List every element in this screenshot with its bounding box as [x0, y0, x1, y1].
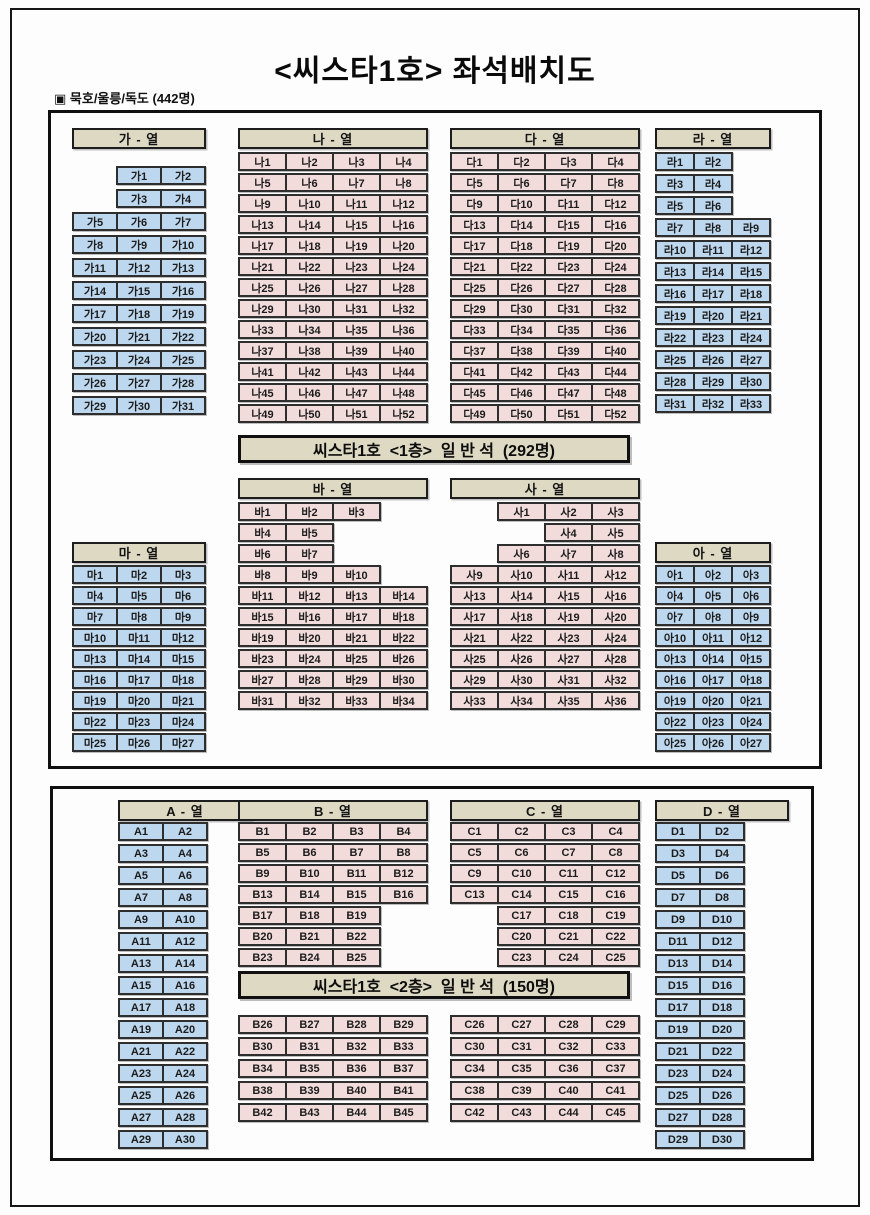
- seat: 사24: [591, 628, 640, 647]
- seat: B12: [379, 864, 428, 883]
- seat-row: 다33다34다35다36: [450, 320, 640, 339]
- seat-row: 마4마5마6: [72, 586, 206, 605]
- seat-row: D17D18: [655, 998, 745, 1017]
- seat: B16: [379, 885, 428, 904]
- seat-row: D27D28: [655, 1108, 745, 1127]
- seat-row: 사13사14사15사16: [450, 586, 640, 605]
- seat: C44: [544, 1103, 593, 1122]
- seat: C3: [544, 822, 593, 841]
- seat: 마12: [160, 628, 206, 647]
- seat: 다51: [544, 404, 593, 423]
- seat: 사7: [544, 544, 593, 563]
- seat: A8: [162, 888, 208, 907]
- seat-grid-na: 나1나2나3나4나5나6나7나8나9나10나11나12나13나14나15나16나…: [238, 152, 428, 423]
- seat: 가21: [116, 327, 162, 346]
- seat: 나14: [285, 215, 334, 234]
- seat-row: 다45다46다47다48: [450, 383, 640, 402]
- seat: C32: [544, 1037, 593, 1056]
- seat: 다18: [497, 236, 546, 255]
- seat: 나36: [379, 320, 428, 339]
- seat: D8: [699, 888, 745, 907]
- seat: 나40: [379, 341, 428, 360]
- seat-row: A23A24: [118, 1064, 208, 1083]
- seat: 라1: [655, 152, 695, 171]
- seat-row: B26B27B28B29: [238, 1015, 428, 1034]
- seat: 사35: [544, 691, 593, 710]
- seat: 바16: [285, 607, 334, 626]
- seat: 마1: [72, 565, 118, 584]
- seat-row: 마16마17마18: [72, 670, 206, 689]
- seat: 나26: [285, 278, 334, 297]
- seat: 다15: [544, 215, 593, 234]
- seat: A29: [118, 1130, 164, 1149]
- seat: 다1: [450, 152, 499, 171]
- seat: 라33: [731, 394, 771, 413]
- seat: B27: [285, 1015, 334, 1034]
- seat: 사36: [591, 691, 640, 710]
- seat: 라29: [693, 372, 733, 391]
- seat: 사31: [544, 670, 593, 689]
- seat-row: C38C39C40C41: [450, 1081, 640, 1100]
- seat: B25: [332, 948, 381, 967]
- seat: 가18: [116, 304, 162, 323]
- column-header-da: 다 - 열: [450, 128, 640, 149]
- seat: 바26: [379, 649, 428, 668]
- seat-row: 다1다2다3다4: [450, 152, 640, 171]
- seat: 바15: [238, 607, 287, 626]
- seat: 나39: [332, 341, 381, 360]
- seat: C21: [544, 927, 593, 946]
- seat: C9: [450, 864, 499, 883]
- seat: 다41: [450, 362, 499, 381]
- seat: 사10: [497, 565, 546, 584]
- seat-row: B13B14B15B16: [238, 885, 428, 904]
- seat: C26: [450, 1015, 499, 1034]
- column-header-ga: 가 - 열: [72, 128, 206, 149]
- seat: 나19: [332, 236, 381, 255]
- seat: 다39: [544, 341, 593, 360]
- page-title: <씨스타1호> 좌석배치도: [0, 46, 870, 90]
- seat: 사9: [450, 565, 499, 584]
- seat: 가15: [116, 281, 162, 300]
- seat: D26: [699, 1086, 745, 1105]
- seat: A20: [162, 1020, 208, 1039]
- seat: 아13: [655, 649, 695, 668]
- seat: 가20: [72, 327, 118, 346]
- seat: 마7: [72, 607, 118, 626]
- seat-row: 라3라4: [655, 174, 771, 193]
- seat-row: D23D24: [655, 1064, 745, 1083]
- seat: 나16: [379, 215, 428, 234]
- seat: A14: [162, 954, 208, 973]
- seat: 나12: [379, 194, 428, 213]
- seat-row: 아1아2아3: [655, 565, 771, 584]
- seat: 라28: [655, 372, 695, 391]
- seat: B8: [379, 843, 428, 862]
- seat: D17: [655, 998, 701, 1017]
- seat-row: 라10라11라12: [655, 240, 771, 259]
- seat: 나38: [285, 341, 334, 360]
- seat: 나49: [238, 404, 287, 423]
- seat: 사13: [450, 586, 499, 605]
- seat: D24: [699, 1064, 745, 1083]
- seat: 사20: [591, 607, 640, 626]
- seat: 마15: [160, 649, 206, 668]
- seat: B33: [379, 1037, 428, 1056]
- seat: 사11: [544, 565, 593, 584]
- seat-row: 다29다30다31다32: [450, 299, 640, 318]
- seat-grid-ah: 아1아2아3아4아5아6아7아8아9아10아11아12아13아14아15아16아…: [655, 565, 771, 752]
- seat-row: 바6바7: [238, 544, 428, 563]
- seat-grid-da: 다1다2다3다4다5다6다7다8다9다10다11다12다13다14다15다16다…: [450, 152, 640, 423]
- seat: 사5: [591, 523, 640, 542]
- seat-row: C1C2C3C4: [450, 822, 640, 841]
- seat: 다37: [450, 341, 499, 360]
- seat-row: 나21나22나23나24: [238, 257, 428, 276]
- seat: C25: [591, 948, 640, 967]
- seat: 사12: [591, 565, 640, 584]
- seat-row: 아16아17아18: [655, 670, 771, 689]
- seat: 사1: [497, 502, 546, 521]
- seat: 아15: [731, 649, 771, 668]
- seat-grid-C-lower: C26C27C28C29C30C31C32C33C34C35C36C37C38C…: [450, 1015, 640, 1122]
- seat: 마2: [116, 565, 162, 584]
- seat-grid-ba: 바1바2바3바4바5바6바7바8바9바10바11바12바13바14바15바16바…: [238, 502, 428, 710]
- seat: 바29: [332, 670, 381, 689]
- seat: 바9: [285, 565, 334, 584]
- seat: C38: [450, 1081, 499, 1100]
- seat-row: 사29사30사31사32: [450, 670, 640, 689]
- seat: D16: [699, 976, 745, 995]
- seat-row: 바1바2바3: [238, 502, 428, 521]
- seat: A28: [162, 1108, 208, 1127]
- seat: B6: [285, 843, 334, 862]
- seat: C8: [591, 843, 640, 862]
- seat: C11: [544, 864, 593, 883]
- seat-row: C9C10C11C12: [450, 864, 640, 883]
- seat: A12: [162, 932, 208, 951]
- seat: 바20: [285, 628, 334, 647]
- seat: B7: [332, 843, 381, 862]
- seat: C31: [497, 1037, 546, 1056]
- seat: 다50: [497, 404, 546, 423]
- seat: 가3: [116, 189, 162, 208]
- seat: 나43: [332, 362, 381, 381]
- seat: 마10: [72, 628, 118, 647]
- seat: 다31: [544, 299, 593, 318]
- seat-row: 가5가6가7: [72, 212, 206, 231]
- seat: 라11: [693, 240, 733, 259]
- seat: 다17: [450, 236, 499, 255]
- seat: 다7: [544, 173, 593, 192]
- seat: 아3: [731, 565, 771, 584]
- seat: 아1: [655, 565, 695, 584]
- seat-row: 바31바32바33바34: [238, 691, 428, 710]
- seat: 다35: [544, 320, 593, 339]
- seat: 나20: [379, 236, 428, 255]
- seat: B28: [332, 1015, 381, 1034]
- seat: 가1: [116, 166, 162, 185]
- seat: C28: [544, 1015, 593, 1034]
- seat: D1: [655, 822, 701, 841]
- seat: 가6: [116, 212, 162, 231]
- seat-row: 라13라14라15: [655, 262, 771, 281]
- seat: B22: [332, 927, 381, 946]
- seat-grid-B-lower: B26B27B28B29B30B31B32B33B34B35B36B37B38B…: [238, 1015, 428, 1122]
- seat: 가28: [160, 373, 206, 392]
- seat-row: B38B39B40B41: [238, 1081, 428, 1100]
- seat: 아12: [731, 628, 771, 647]
- seat: C24: [544, 948, 593, 967]
- seat: 바32: [285, 691, 334, 710]
- seat: 나33: [238, 320, 287, 339]
- seat: C12: [591, 864, 640, 883]
- seat-row: 다13다14다15다16: [450, 215, 640, 234]
- seat: B4: [379, 822, 428, 841]
- seat-row: 바4바5: [238, 523, 428, 542]
- seat: 아6: [731, 586, 771, 605]
- seat: 사23: [544, 628, 593, 647]
- seat-row: D11D12: [655, 932, 745, 951]
- seat: 사17: [450, 607, 499, 626]
- seat-row: 가17가18가19: [72, 304, 206, 323]
- seat: 다21: [450, 257, 499, 276]
- seat-row: A15A16: [118, 976, 208, 995]
- seat: 아16: [655, 670, 695, 689]
- seat: B14: [285, 885, 334, 904]
- seat: 가26: [72, 373, 118, 392]
- seat: A2: [162, 822, 208, 841]
- seat-row: C20C21C22: [450, 927, 640, 946]
- seat-row: 마22마23마24: [72, 712, 206, 731]
- seat: 바21: [332, 628, 381, 647]
- seat: 가9: [116, 235, 162, 254]
- seat: 마24: [160, 712, 206, 731]
- seat-row: A19A20: [118, 1020, 208, 1039]
- seat: D18: [699, 998, 745, 1017]
- column-header-ah: 아 - 열: [655, 542, 771, 563]
- seat: C45: [591, 1103, 640, 1122]
- deck2-section: A - 열 A1A2A3A4A5A6A7A8A9A10A11A12A13A14A…: [50, 786, 814, 1161]
- seat: 바23: [238, 649, 287, 668]
- seat: C40: [544, 1081, 593, 1100]
- seat-row: 나41나42나43나44: [238, 362, 428, 381]
- seat: 나23: [332, 257, 381, 276]
- seat: 아9: [731, 607, 771, 626]
- seat: 바13: [332, 586, 381, 605]
- seat: 라17: [693, 284, 733, 303]
- seat: 다47: [544, 383, 593, 402]
- seat-row: 가14가15가16: [72, 281, 206, 300]
- seat: 다34: [497, 320, 546, 339]
- seat: 나44: [379, 362, 428, 381]
- seat: 바10: [332, 565, 381, 584]
- seat: D2: [699, 822, 745, 841]
- seat: 사27: [544, 649, 593, 668]
- seat-row: D15D16: [655, 976, 745, 995]
- seat: C22: [591, 927, 640, 946]
- seat: 바12: [285, 586, 334, 605]
- seat: 다44: [591, 362, 640, 381]
- seat-row: 가11가12가13: [72, 258, 206, 277]
- seat: 아22: [655, 712, 695, 731]
- seat: 가27: [116, 373, 162, 392]
- seat: 사14: [497, 586, 546, 605]
- seat: C34: [450, 1059, 499, 1078]
- seat-row: 라19라20라21: [655, 306, 771, 325]
- seat: C13: [450, 885, 499, 904]
- seat-row: 아7아8아9: [655, 607, 771, 626]
- seat: 바19: [238, 628, 287, 647]
- seat-row: 나29나30나31나32: [238, 299, 428, 318]
- seat: 가5: [72, 212, 118, 231]
- seat-row: D9D10: [655, 910, 745, 929]
- seat-row: B34B35B36B37: [238, 1059, 428, 1078]
- seat: D20: [699, 1020, 745, 1039]
- seat: D14: [699, 954, 745, 973]
- seat-row: A17A18: [118, 998, 208, 1017]
- seat-row: 바27바28바29바30: [238, 670, 428, 689]
- seat: A30: [162, 1130, 208, 1149]
- seat-row: A11A12: [118, 932, 208, 951]
- seat: 라14: [693, 262, 733, 281]
- seat: C41: [591, 1081, 640, 1100]
- deck1-section: 가 - 열 가1가2가3가4가5가6가7가8가9가10가11가12가13가14가…: [48, 110, 822, 769]
- seat-row: D19D20: [655, 1020, 745, 1039]
- seat: D22: [699, 1042, 745, 1061]
- seat-row: 바23바24바25바26: [238, 649, 428, 668]
- seat-row: B23B24B25: [238, 948, 428, 967]
- seat: A19: [118, 1020, 164, 1039]
- seat-row: A21A22: [118, 1042, 208, 1061]
- seat: B13: [238, 885, 287, 904]
- seat-row: C13C14C15C16: [450, 885, 640, 904]
- seat: 가10: [160, 235, 206, 254]
- seat: B23: [238, 948, 287, 967]
- column-header-ba: 바 - 열: [238, 478, 428, 499]
- seat: B20: [238, 927, 287, 946]
- seat: 마3: [160, 565, 206, 584]
- column-header-A: A - 열: [118, 800, 252, 821]
- seat: 나4: [379, 152, 428, 171]
- seat-row: C5C6C7C8: [450, 843, 640, 862]
- seat: 나27: [332, 278, 381, 297]
- seat: C20: [497, 927, 546, 946]
- seat: 가16: [160, 281, 206, 300]
- seat: 바7: [285, 544, 334, 563]
- seat: 사21: [450, 628, 499, 647]
- seat: 다24: [591, 257, 640, 276]
- seat: A5: [118, 866, 164, 885]
- seat-row: C26C27C28C29: [450, 1015, 640, 1034]
- seat-row: A5A6: [118, 866, 208, 885]
- seat: 라5: [655, 196, 695, 215]
- seat-row: 가1가2: [72, 166, 206, 185]
- seat: 마19: [72, 691, 118, 710]
- seat: 나3: [332, 152, 381, 171]
- seat: C43: [497, 1103, 546, 1122]
- seat: B38: [238, 1081, 287, 1100]
- seat: 나17: [238, 236, 287, 255]
- seat: 나45: [238, 383, 287, 402]
- seat: 아5: [693, 586, 733, 605]
- seat: 나1: [238, 152, 287, 171]
- seat: B10: [285, 864, 334, 883]
- seat: 라31: [655, 394, 695, 413]
- seat: 라26: [693, 350, 733, 369]
- seat-row: 나13나14나15나16: [238, 215, 428, 234]
- seat-row: D1D2: [655, 822, 745, 841]
- seat: 아26: [693, 733, 733, 752]
- seat: 다43: [544, 362, 593, 381]
- seat: 아7: [655, 607, 695, 626]
- seat: A9: [118, 910, 164, 929]
- seat: 아14: [693, 649, 733, 668]
- seat: 마8: [116, 607, 162, 626]
- seat-row: A7A8: [118, 888, 208, 907]
- seat-row: 다41다42다43다44: [450, 362, 640, 381]
- seat-row: 라28라29라30: [655, 372, 771, 391]
- seat: 사32: [591, 670, 640, 689]
- seat: 나11: [332, 194, 381, 213]
- seat: B31: [285, 1037, 334, 1056]
- seat: 나50: [285, 404, 334, 423]
- seat: 다9: [450, 194, 499, 213]
- seat-row: 사25사26사27사28: [450, 649, 640, 668]
- seat-row: D3D4: [655, 844, 745, 863]
- seat: 다33: [450, 320, 499, 339]
- seat: 아11: [693, 628, 733, 647]
- seat: 나13: [238, 215, 287, 234]
- seat: 마20: [116, 691, 162, 710]
- seat: 라19: [655, 306, 695, 325]
- seat-row: 마7마8마9: [72, 607, 206, 626]
- seat-row: A9A10: [118, 910, 208, 929]
- seat: A21: [118, 1042, 164, 1061]
- seat-row: 다9다10다11다12: [450, 194, 640, 213]
- seat: 사22: [497, 628, 546, 647]
- seat: A13: [118, 954, 164, 973]
- seat-grid-B-upper: B1B2B3B4B5B6B7B8B9B10B11B12B13B14B15B16B…: [238, 822, 428, 967]
- seat: 가17: [72, 304, 118, 323]
- seat: 바14: [379, 586, 428, 605]
- seat: 바31: [238, 691, 287, 710]
- seat: C7: [544, 843, 593, 862]
- seat-row: D25D26: [655, 1086, 745, 1105]
- seat-row: A27A28: [118, 1108, 208, 1127]
- seat: 아20: [693, 691, 733, 710]
- seat-row: B30B31B32B33: [238, 1037, 428, 1056]
- seat: 라7: [655, 218, 695, 237]
- seat: 라8: [693, 218, 733, 237]
- seat: C30: [450, 1037, 499, 1056]
- seat: A25: [118, 1086, 164, 1105]
- seat-row: 아19아20아21: [655, 691, 771, 710]
- seat: 라16: [655, 284, 695, 303]
- seat: A27: [118, 1108, 164, 1127]
- seat: 다49: [450, 404, 499, 423]
- seat-row: 다21다22다23다24: [450, 257, 640, 276]
- seat: 다14: [497, 215, 546, 234]
- seat-grid-ma: 마1마2마3마4마5마6마7마8마9마10마11마12마13마14마15마16마…: [72, 565, 206, 752]
- seat-row: 사1사2사3: [450, 502, 640, 521]
- seat: B37: [379, 1059, 428, 1078]
- seat: 나42: [285, 362, 334, 381]
- seat: 마26: [116, 733, 162, 752]
- seat: C42: [450, 1103, 499, 1122]
- seat-grid-C-upper: C1C2C3C4C5C6C7C8C9C10C11C12C13C14C15C16C…: [450, 822, 640, 967]
- seat: 나22: [285, 257, 334, 276]
